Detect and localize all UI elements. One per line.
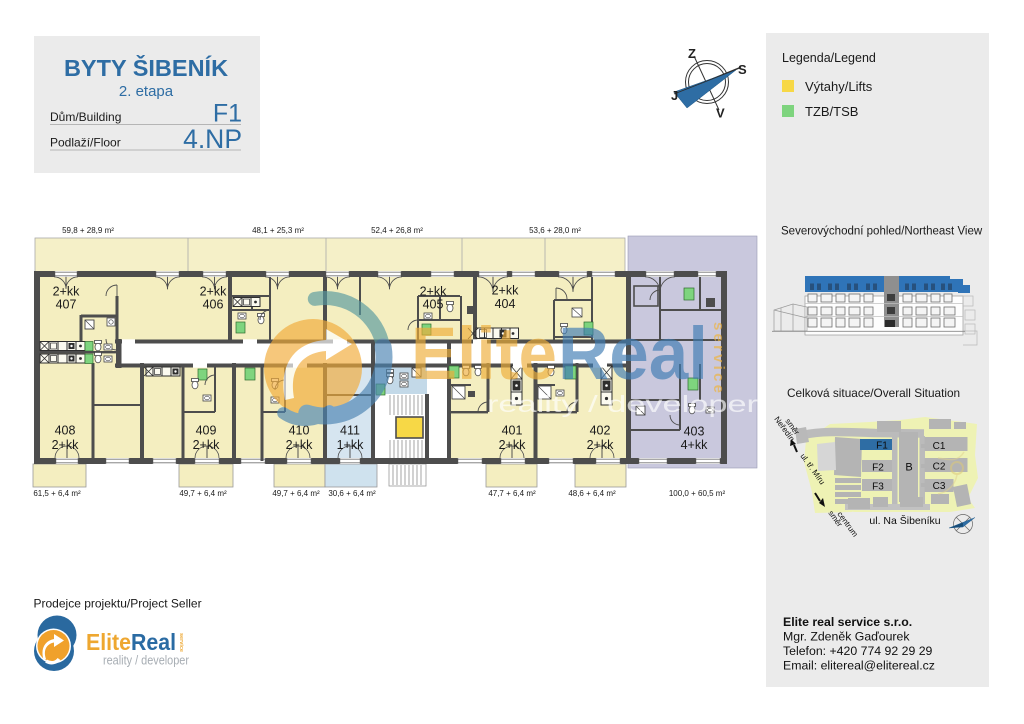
svg-text:404: 404 bbox=[495, 297, 516, 311]
svg-text:Real: Real bbox=[131, 629, 176, 655]
svg-text:2+kk: 2+kk bbox=[53, 285, 81, 299]
svg-text:Real: Real bbox=[558, 312, 708, 395]
svg-text:4.NP: 4.NP bbox=[183, 124, 242, 154]
svg-text:F3: F3 bbox=[872, 482, 884, 493]
svg-text:Elite: Elite bbox=[86, 629, 131, 655]
svg-text:1+kk: 1+kk bbox=[337, 438, 365, 452]
svg-text:V: V bbox=[716, 106, 725, 121]
svg-text:411: 411 bbox=[340, 424, 360, 438]
svg-text:49,7 + 6,4 m²: 49,7 + 6,4 m² bbox=[179, 489, 227, 498]
svg-text:Dům/Building: Dům/Building bbox=[50, 110, 121, 124]
svg-text:52,4 + 26,8 m²: 52,4 + 26,8 m² bbox=[371, 226, 423, 235]
svg-text:53,6 + 28,0 m²: 53,6 + 28,0 m² bbox=[529, 226, 581, 235]
svg-text:reality / developer: reality / developer bbox=[103, 654, 189, 668]
svg-text:Výtahy/Lifts: Výtahy/Lifts bbox=[805, 79, 873, 94]
svg-text:C2: C2 bbox=[933, 462, 946, 473]
svg-text:2. etapa: 2. etapa bbox=[119, 83, 174, 100]
svg-text:4+kk: 4+kk bbox=[681, 438, 709, 452]
svg-text:Mgr. Zdeněk Gaďourek: Mgr. Zdeněk Gaďourek bbox=[783, 630, 910, 644]
svg-text:Telefon: +420 774 92 29 29: Telefon: +420 774 92 29 29 bbox=[783, 644, 933, 658]
svg-text:S: S bbox=[738, 62, 747, 77]
svg-text:Z: Z bbox=[688, 46, 696, 61]
svg-text:403: 403 bbox=[684, 425, 705, 439]
svg-text:401: 401 bbox=[502, 424, 523, 438]
svg-text:100,0 + 60,5 m²: 100,0 + 60,5 m² bbox=[669, 489, 726, 498]
svg-text:Prodejce projektu/Project Sell: Prodejce projektu/Project Seller bbox=[34, 597, 202, 611]
svg-text:48,1 + 25,3 m²: 48,1 + 25,3 m² bbox=[252, 226, 304, 235]
svg-text:2+kk: 2+kk bbox=[286, 438, 314, 452]
svg-text:407: 407 bbox=[56, 298, 77, 312]
svg-text:2+kk: 2+kk bbox=[52, 438, 80, 452]
svg-text:service: service bbox=[178, 633, 184, 652]
svg-text:2+kk: 2+kk bbox=[492, 284, 520, 298]
svg-text:BYTY ŠIBENÍK: BYTY ŠIBENÍK bbox=[64, 54, 228, 81]
svg-text:C3: C3 bbox=[933, 481, 946, 492]
svg-text:C1: C1 bbox=[933, 441, 946, 452]
svg-text:Email: elitereal@elitereal.cz: Email: elitereal@elitereal.cz bbox=[783, 659, 935, 673]
svg-text:2+kk: 2+kk bbox=[200, 285, 228, 299]
svg-text:B: B bbox=[905, 462, 912, 474]
svg-text:Elite: Elite bbox=[411, 312, 557, 395]
svg-text:reality / developer: reality / developer bbox=[487, 391, 758, 417]
svg-text:30,6 + 6,4 m²: 30,6 + 6,4 m² bbox=[328, 489, 376, 498]
svg-text:TZB/TSB: TZB/TSB bbox=[805, 104, 858, 119]
svg-text:61,5 + 6,4 m²: 61,5 + 6,4 m² bbox=[33, 489, 81, 498]
svg-text:47,7 + 6,4 m²: 47,7 + 6,4 m² bbox=[488, 489, 536, 498]
svg-text:Podlaží/Floor: Podlaží/Floor bbox=[50, 136, 121, 150]
svg-text:409: 409 bbox=[196, 424, 217, 438]
svg-text:405: 405 bbox=[423, 298, 444, 312]
svg-text:ul. Na Šibeníku: ul. Na Šibeníku bbox=[869, 514, 940, 527]
svg-text:2+kk: 2+kk bbox=[193, 438, 221, 452]
svg-text:408: 408 bbox=[55, 424, 76, 438]
svg-text:402: 402 bbox=[590, 424, 611, 438]
svg-text:2+kk: 2+kk bbox=[587, 438, 615, 452]
svg-text:2+kk: 2+kk bbox=[499, 438, 527, 452]
svg-text:Celková situace/Overall Situat: Celková situace/Overall Situation bbox=[787, 386, 960, 400]
svg-text:J: J bbox=[671, 88, 678, 103]
svg-text:F2: F2 bbox=[872, 463, 884, 474]
svg-text:2+kk: 2+kk bbox=[420, 285, 448, 299]
svg-text:Elite real service s.r.o.: Elite real service s.r.o. bbox=[783, 615, 912, 629]
svg-text:Legenda/Legend: Legenda/Legend bbox=[782, 51, 876, 65]
svg-text:406: 406 bbox=[203, 298, 224, 312]
svg-text:49,7 + 6,4 m²: 49,7 + 6,4 m² bbox=[272, 489, 320, 498]
svg-text:service: service bbox=[710, 322, 727, 396]
svg-text:59,8 + 28,9 m²: 59,8 + 28,9 m² bbox=[62, 226, 114, 235]
svg-text:48,6 + 6,4 m²: 48,6 + 6,4 m² bbox=[568, 489, 616, 498]
svg-text:Severovýchodní pohled/Northeas: Severovýchodní pohled/Northeast View bbox=[781, 226, 983, 238]
svg-text:F1: F1 bbox=[876, 441, 888, 452]
